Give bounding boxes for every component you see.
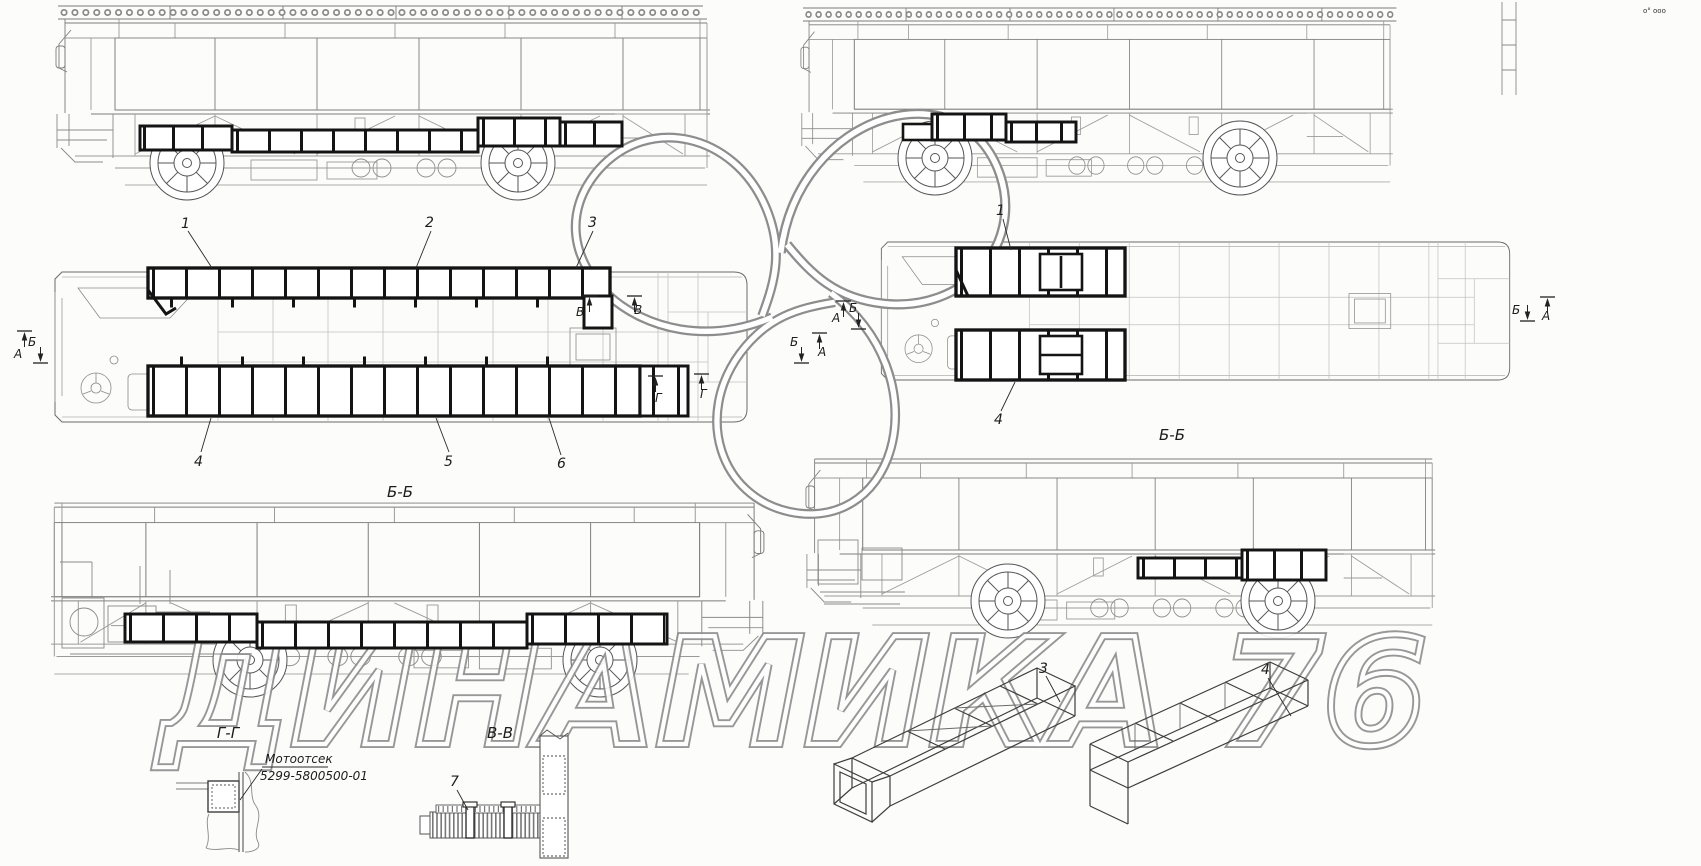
section-letter-a: А: [1541, 309, 1550, 323]
technical-drawing: ДИНАМИКА 76 ДИНАМИКА 76: [0, 0, 1701, 866]
section-title-bb-right: Б-Б: [1159, 426, 1185, 444]
section-letter-b: Б: [28, 335, 36, 349]
section-letter-v: В: [576, 305, 584, 319]
section-letter-a: А: [817, 345, 826, 359]
callout-3: 3: [588, 215, 597, 231]
sheet-edge-fragment: [1502, 2, 1516, 95]
bus-side-view-top-right: [801, 8, 1396, 195]
duct-run-plan-right-upper: [956, 248, 1125, 296]
callout-2: 2: [425, 215, 434, 231]
duct-run-plan-left-lower: [148, 361, 688, 416]
section-letter-g: Г: [700, 387, 708, 401]
duct-run-plan-right-lower: [956, 330, 1125, 380]
drawing-sheet: ДИНАМИКА 76 ДИНАМИКА 76: [0, 0, 1701, 866]
callout-1-right: 1: [996, 203, 1005, 219]
bus-side-view-top-left: [56, 6, 710, 200]
detail-g-g: [176, 772, 259, 852]
section-title-gg: Г-Г: [217, 724, 241, 742]
section-title-vv: В-В: [487, 724, 513, 742]
corner-mark: о° ооо: [1643, 7, 1666, 15]
section-title-bb-left: Б-Б: [387, 483, 413, 501]
callout-6: 6: [557, 456, 566, 472]
callout-5: 5: [444, 454, 453, 470]
section-letter-v: В: [634, 303, 642, 317]
section-letter-b: Б: [790, 335, 798, 349]
callout-4-right: 4: [994, 412, 1003, 428]
callout-1: 1: [181, 216, 190, 232]
duct-run-bottom-right-bus: [1138, 550, 1326, 580]
callout-4-iso: 4: [1261, 662, 1270, 678]
callout-4: 4: [194, 454, 203, 470]
section-letter-b: Б: [1512, 303, 1520, 317]
callout-7: 7: [450, 774, 459, 790]
section-letter-b: Б: [849, 301, 857, 315]
section-letter-a: А: [831, 311, 840, 325]
note-line1: Мотоотсек: [265, 752, 333, 766]
callout-3-iso: 3: [1039, 661, 1048, 677]
section-letter-a: А: [13, 347, 22, 361]
note-line2: 5299-5800500-01: [260, 769, 368, 783]
